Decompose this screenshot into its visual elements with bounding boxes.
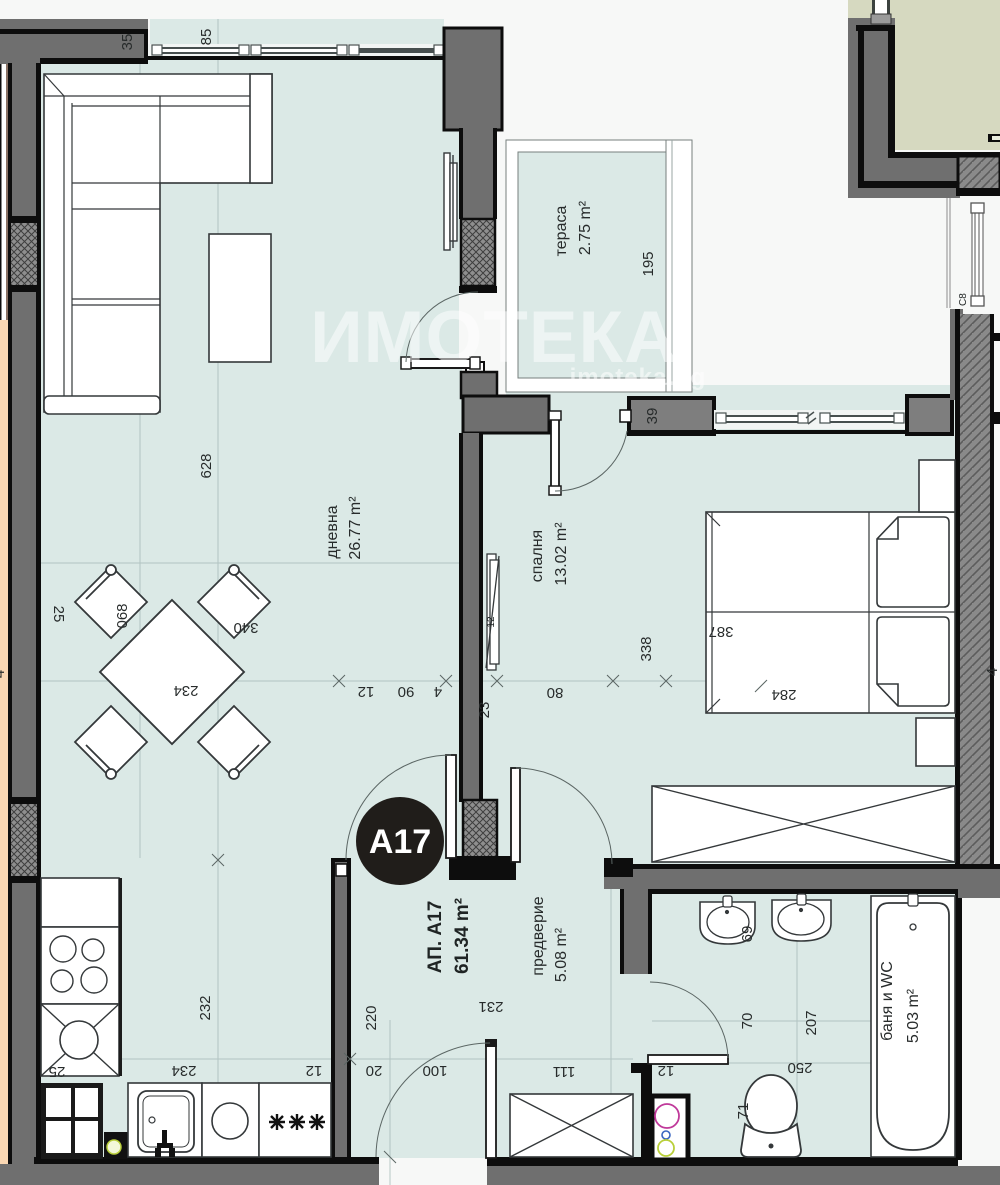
svg-text:220: 220 <box>363 1005 380 1030</box>
svg-text:imoteka.bg: imoteka.bg <box>570 364 707 391</box>
svg-text:340: 340 <box>233 619 258 636</box>
svg-text:231: 231 <box>478 998 503 1015</box>
svg-text:250: 250 <box>787 1059 812 1076</box>
svg-text:100: 100 <box>422 1062 447 1079</box>
svg-text:25: 25 <box>50 606 67 623</box>
svg-text:207: 207 <box>803 1010 820 1035</box>
svg-text:111: 111 <box>553 1063 576 1080</box>
svg-text:12: 12 <box>658 1062 675 1079</box>
svg-text:2.75 m²: 2.75 m² <box>577 200 594 255</box>
svg-text:628: 628 <box>198 453 215 478</box>
svg-text:C8: C8 <box>958 293 969 306</box>
svg-text:баня и WC: баня и WC <box>879 961 896 1041</box>
svg-text:A17: A17 <box>369 823 431 861</box>
svg-text:26.77 m²: 26.77 m² <box>347 496 364 560</box>
svg-text:4: 4 <box>434 683 442 700</box>
svg-text:4: 4 <box>0 670 8 678</box>
svg-text:дневна: дневна <box>324 505 341 558</box>
svg-text:20: 20 <box>366 1062 383 1079</box>
svg-text:068: 068 <box>114 603 131 628</box>
svg-text:90: 90 <box>398 683 415 700</box>
svg-text:23: 23 <box>476 702 493 719</box>
svg-text:284: 284 <box>771 686 796 703</box>
svg-text:232: 232 <box>197 995 214 1020</box>
svg-text:71: 71 <box>735 1103 752 1120</box>
svg-text:5.08 m²: 5.08 m² <box>553 927 570 982</box>
svg-text:85: 85 <box>198 29 215 46</box>
svg-text:35: 35 <box>119 34 136 51</box>
svg-text:12: 12 <box>486 616 497 628</box>
svg-text:12: 12 <box>306 1062 323 1079</box>
svg-text:12: 12 <box>358 683 375 700</box>
svg-text:387: 387 <box>708 623 733 640</box>
svg-text:70: 70 <box>739 1013 756 1030</box>
svg-text:25: 25 <box>49 1063 66 1080</box>
svg-text:тераса: тераса <box>553 206 570 257</box>
svg-text:234: 234 <box>171 1062 196 1079</box>
svg-text:АП. А17: АП. А17 <box>425 901 446 974</box>
svg-text:5.03 m²: 5.03 m² <box>905 988 922 1043</box>
svg-text:спалня: спалня <box>529 530 546 582</box>
svg-text:13.02 m²: 13.02 m² <box>553 522 570 586</box>
svg-text:195: 195 <box>640 251 657 276</box>
svg-text:4: 4 <box>984 668 1000 676</box>
svg-text:234: 234 <box>173 682 198 699</box>
svg-text:39: 39 <box>644 408 661 425</box>
svg-text:61.34 m²: 61.34 m² <box>452 898 473 974</box>
svg-text:338: 338 <box>638 636 655 661</box>
svg-text:предверие: предверие <box>530 896 547 976</box>
svg-text:80: 80 <box>547 684 564 701</box>
svg-text:69: 69 <box>739 926 756 943</box>
